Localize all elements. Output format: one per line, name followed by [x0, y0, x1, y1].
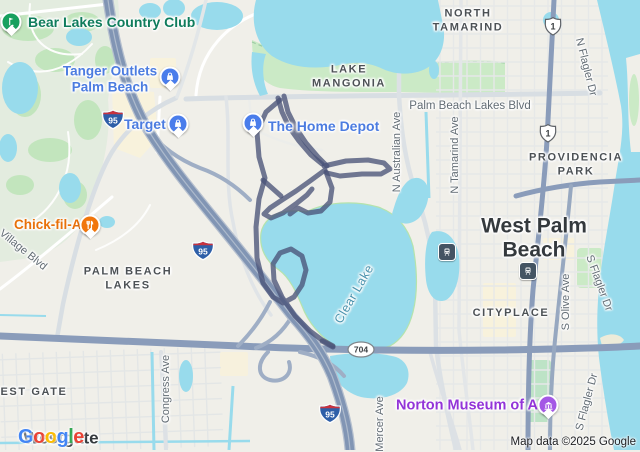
congress-ave-label: Congress Ave — [160, 355, 172, 423]
palm-beach-lakes-label: PALM BEACHLAKES — [84, 265, 173, 294]
bear-lakes-country-club-label[interactable]: Bear Lakes Country Club — [28, 14, 195, 30]
tanger-outlets-palm-beach-label[interactable]: Tanger OutletsPalm Beach — [63, 63, 157, 94]
west-gate-label: WEST GATE — [0, 385, 67, 399]
mercer-ave-label: Mercer Ave — [374, 396, 386, 451]
n-australian-ave-label: N Australian Ave — [391, 112, 403, 193]
google-logo-letter: G — [18, 426, 33, 448]
lake-mangonia-label: LAKEMANGONIA — [312, 63, 386, 92]
google-logo[interactable]: Google — [18, 426, 84, 449]
cityplace-label: CITYPLACE — [473, 306, 550, 320]
the-home-depot-label[interactable]: The Home Depot — [268, 118, 379, 134]
map-canvas[interactable]: Bear Lakes Country ClubTanger OutletsPal… — [0, 0, 640, 450]
providencia-park-label: PROVIDENCIAPARK — [529, 151, 623, 180]
north-tamarind-label: NORTHTAMARIND — [433, 7, 504, 36]
map-attribution: Map data ©2025 Google — [511, 436, 636, 448]
norton-museum-of-art-label[interactable]: Norton Museum of Art — [396, 398, 549, 415]
palm-beach-lakes-blvd-label: Palm Beach Lakes Blvd — [409, 100, 530, 112]
west-palm-beach-label: West PalmBeach — [481, 214, 587, 261]
google-logo-letter: o — [33, 426, 45, 448]
s-olive-ave-label: S Olive Ave — [560, 274, 572, 331]
google-logo-letter: g — [57, 426, 69, 448]
chick-fil-a-label[interactable]: Chick-fil-A — [14, 217, 82, 233]
google-logo-letter: e — [73, 426, 84, 448]
n-tamarind-ave-label: N Tamarind Ave — [449, 116, 461, 193]
target-label[interactable]: Target — [124, 116, 166, 132]
google-logo-letter: o — [45, 426, 57, 448]
